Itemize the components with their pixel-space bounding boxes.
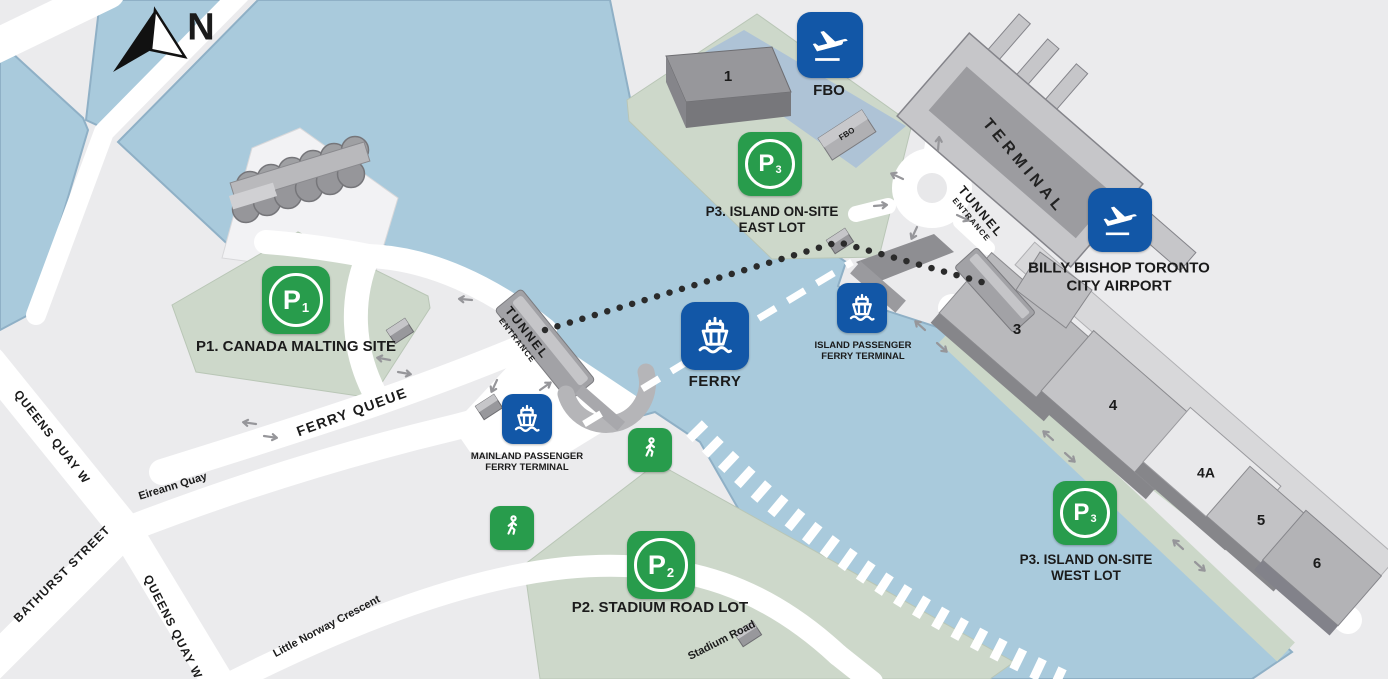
fbo-label: FBO <box>813 82 845 100</box>
airport-marker[interactable] <box>1088 188 1152 252</box>
parking-icon: P 3 <box>745 139 796 190</box>
airplane-takeoff-icon <box>809 24 851 66</box>
island-ferry-terminal-marker[interactable] <box>837 283 887 333</box>
mainland-ferry-terminal-label: MAINLAND PASSENGER FERRY TERMINAL <box>471 451 583 473</box>
pedestrian-crossing-marker[interactable] <box>628 428 672 472</box>
fbo-marker[interactable] <box>797 12 863 78</box>
p3-west-lot-label: P3. ISLAND ON-SITE WEST LOT <box>1020 552 1153 584</box>
ferry-icon <box>845 291 879 325</box>
parking-p3-west-marker[interactable]: P 3 <box>1053 481 1117 545</box>
parking-p3-east-marker[interactable]: P 3 <box>738 132 802 196</box>
pedestrian-icon <box>497 513 527 543</box>
building-6-label: 6 <box>1313 555 1321 573</box>
parking-icon: P 2 <box>634 538 688 592</box>
building-3-label: 3 <box>1013 321 1021 339</box>
mainland-ferry-terminal-marker[interactable] <box>502 394 552 444</box>
pedestrian-icon <box>635 435 665 465</box>
airport-parking-map: N P 3 P 1 P 2 P 3 <box>0 0 1388 679</box>
ferry-icon <box>692 313 738 359</box>
airport-name-label: BILLY BISHOP TORONTO CITY AIRPORT <box>1028 259 1210 294</box>
p3-east-lot-label: P3. ISLAND ON-SITE EAST LOT <box>706 204 839 236</box>
airplane-takeoff-icon <box>1100 200 1140 240</box>
p2-lot-label: P2. STADIUM ROAD LOT <box>572 599 748 617</box>
ferry-marker[interactable] <box>681 302 749 370</box>
p1-lot-label: P1. CANADA MALTING SITE <box>196 338 396 356</box>
ferry-icon <box>510 402 544 436</box>
parking-icon: P 3 <box>1060 488 1111 539</box>
building-4-label: 4 <box>1109 397 1117 415</box>
building-1-label: 1 <box>724 68 732 86</box>
compass-n-label: N <box>187 6 214 51</box>
pedestrian-crossing-marker[interactable] <box>490 506 534 550</box>
compass-north-icon <box>100 2 200 82</box>
parking-icon: P 1 <box>269 273 323 327</box>
building-5-label: 5 <box>1257 512 1265 530</box>
island-ferry-terminal-label: ISLAND PASSENGER FERRY TERMINAL <box>815 340 912 362</box>
parking-p1-marker[interactable]: P 1 <box>262 266 330 334</box>
building-4a-label: 4A <box>1197 465 1215 482</box>
ferry-label: FERRY <box>689 373 742 391</box>
parking-p2-marker[interactable]: P 2 <box>627 531 695 599</box>
